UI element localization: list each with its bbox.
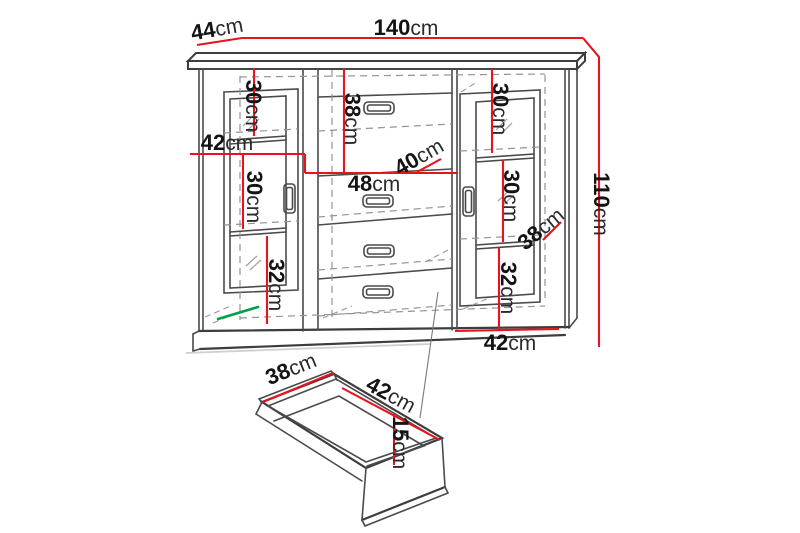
dim-label-left-top-shelf: 30cm — [241, 80, 266, 132]
drawer-handle — [364, 102, 394, 114]
drawer-handle — [364, 245, 394, 257]
cabinet-partitions — [303, 69, 457, 331]
furniture-dimension-diagram: 140cm 44cm 110cm 30cm 42cm 30cm 32cm 38c… — [0, 0, 800, 533]
dim-label-center-drawer-width: 48cm — [348, 171, 400, 196]
dim-label-right-top-shelf: 30cm — [488, 83, 513, 135]
dim-label-left-middle-shelf: 30cm — [242, 171, 267, 223]
drawer-handle — [363, 195, 393, 207]
dim-label-drawer-height: 15cm — [388, 417, 413, 469]
dim-label-right-bottom-shelf: 32cm — [496, 262, 521, 314]
dim-label-left-door-width: 42cm — [201, 130, 253, 155]
dim-label-cabinet-height: 110cm — [589, 172, 614, 236]
dim-label-right-door-width: 42cm — [484, 330, 536, 355]
dim-label-right-middle-shelf: 30cm — [499, 170, 524, 222]
cabinet-top-board — [188, 53, 585, 69]
dimension-labels: 140cm 44cm 110cm 30cm 42cm 30cm 32cm 38c… — [189, 12, 614, 470]
drawer-handle — [363, 286, 393, 298]
dim-label-cabinet-width: 140cm — [374, 15, 439, 40]
dim-label-left-bottom-shelf: 32cm — [264, 259, 289, 311]
dim-label-center-top-drawer: 38cm — [340, 93, 365, 145]
right-door-handle — [463, 187, 474, 216]
dim-label-cabinet-depth: 44cm — [189, 12, 245, 46]
diagram-canvas: 140cm 44cm 110cm 30cm 42cm 30cm 32cm 38c… — [0, 0, 800, 533]
